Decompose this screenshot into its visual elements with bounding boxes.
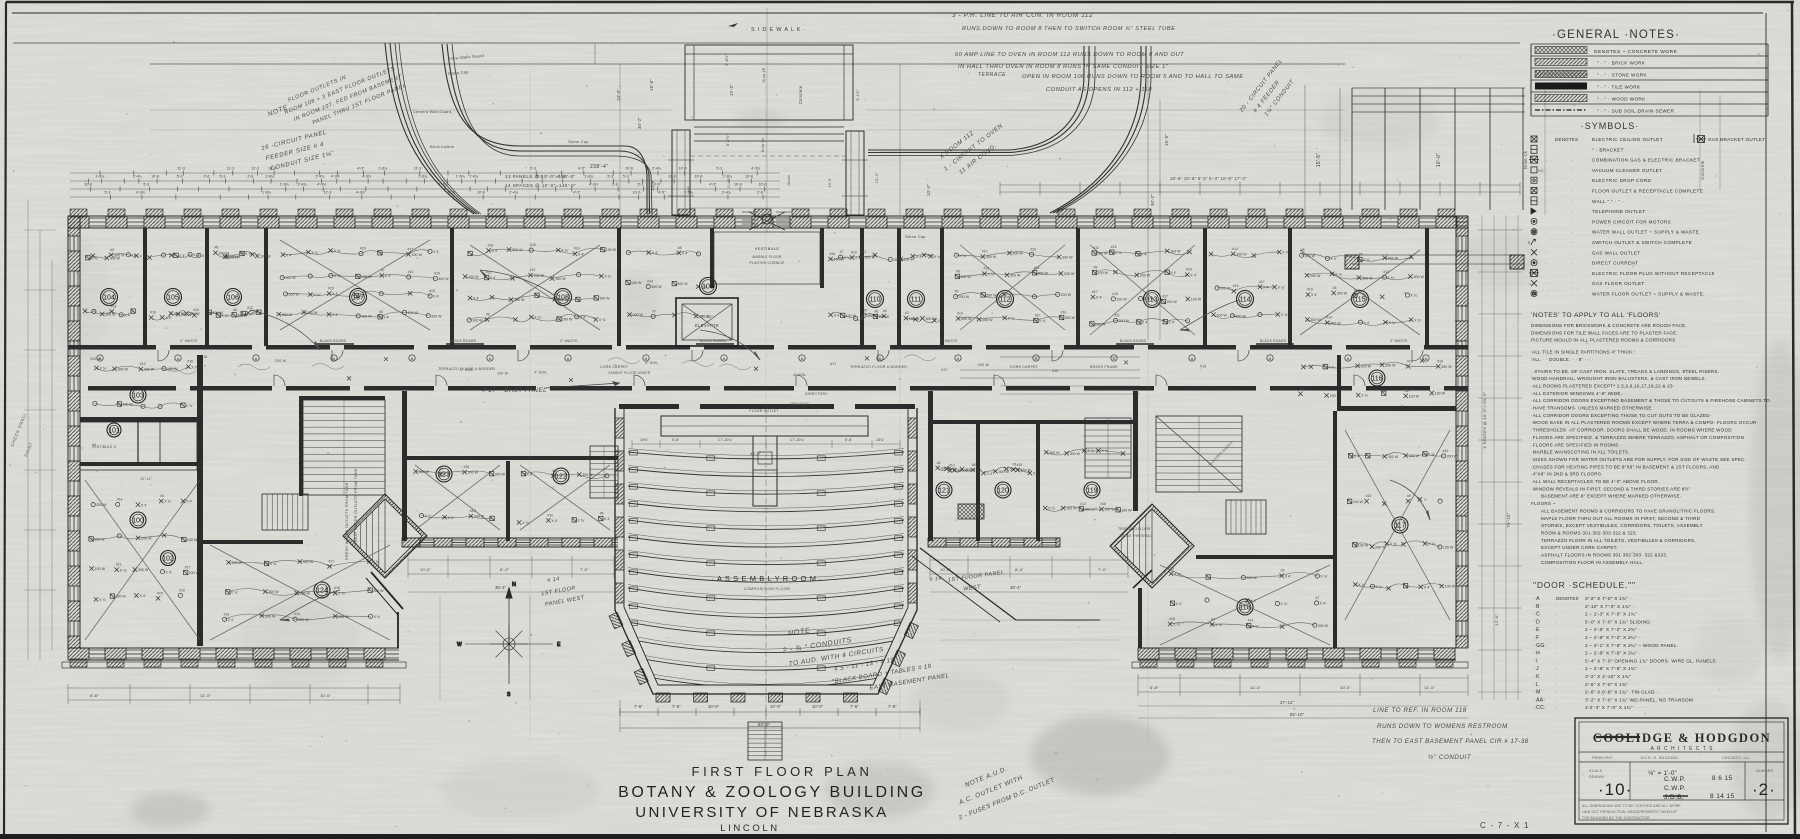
svg-text:#10: #10 xyxy=(1061,311,1067,315)
svg-text:200 W: 200 W xyxy=(986,294,997,298)
svg-text:A: A xyxy=(957,356,960,361)
svg-text:X ¾': X ¾' xyxy=(561,249,568,253)
svg-text:COMPOSITION FLOOR IN ASSEMB: COMPOSITION FLOOR IN ASSEMBLY HALL. xyxy=(1541,560,1644,565)
svg-text:4'-3½: 4'-3½ xyxy=(356,191,365,195)
svg-text:A: A xyxy=(333,356,336,361)
svg-text:·: · xyxy=(1556,674,1558,679)
svg-text:200 W: 200 W xyxy=(1409,454,1420,458)
svg-text:TERRAZZO FLOOR IN ALL TOILETS,: TERRAZZO FLOOR IN ALL TOILETS, VESTIBULE… xyxy=(1541,538,1696,543)
svg-text:X ¾': X ¾' xyxy=(599,318,606,322)
svg-text:#18: #18 xyxy=(1112,292,1118,296)
svg-text:2 – 2'-8" X 7'-6" X 1¾": 2 – 2'-8" X 7'-6" X 1¾" xyxy=(1585,666,1637,671)
svg-text:10'-6: 10'-6 xyxy=(447,191,455,195)
svg-text:X ¾': X ¾' xyxy=(191,365,198,369)
svg-text:X ¾': X ¾' xyxy=(1048,507,1055,511)
svg-text:DIRECT CURRENT: DIRECT CURRENT xyxy=(1592,261,1638,266)
svg-text:27'-11": 27'-11" xyxy=(1280,700,1294,705)
svg-text:X 4': X 4' xyxy=(604,517,610,521)
svg-text:200 W: 200 W xyxy=(982,318,993,322)
svg-text:200 W: 200 W xyxy=(961,317,972,321)
svg-text:30'-2": 30'-2" xyxy=(637,117,642,129)
svg-text:·FLOORS ARE SPECIFIED. & TERR: ·FLOORS ARE SPECIFIED. & TERRAZZO WHERE … xyxy=(1531,435,1744,440)
svg-text:4'-5": 4'-5" xyxy=(709,183,717,187)
svg-text:4'-5": 4'-5" xyxy=(658,191,666,195)
svg-text:5'-3: 5'-3 xyxy=(219,175,225,179)
svg-text:·: · xyxy=(1546,209,1548,214)
svg-text:TERRAZZO FLOOR: TERRAZZO FLOOR xyxy=(1118,527,1151,531)
svg-text:C.W.P.: C.W.P. xyxy=(1664,785,1686,792)
svg-text:200 W: 200 W xyxy=(275,359,287,363)
svg-text:#10: #10 xyxy=(547,513,553,517)
svg-text:300 W: 300 W xyxy=(1010,274,1021,278)
svg-text:10'-6: 10'-6 xyxy=(633,191,641,195)
svg-text:A R C H I T E C T S: A R C H I T E C T S xyxy=(1651,746,1714,752)
svg-text:103: 103 xyxy=(132,393,144,400)
svg-text:101: 101 xyxy=(108,428,120,435)
svg-text:DIMENSIONS FOR BRICKWORK & CO: DIMENSIONS FOR BRICKWORK & CONCRETE ARE … xyxy=(1531,323,1687,328)
svg-text:2'-6" X 6'-8" X 1¾" ·TIN CLA: 2'-6" X 6'-8" X 1¾" ·TIN CLAD · xyxy=(1585,690,1658,695)
svg-text:200 W: 200 W xyxy=(978,363,990,367)
svg-text:V.C.: V.C. xyxy=(1538,169,1545,173)
svg-text:X 4': X 4' xyxy=(1176,602,1182,606)
svg-text:Stone Cap: Stone Cap xyxy=(568,139,589,144)
svg-text:100 W: 100 W xyxy=(122,403,133,407)
svg-text:100: 100 xyxy=(132,518,144,525)
svg-text:X ¾': X ¾' xyxy=(1376,585,1383,589)
svg-text:"DOOR ·SCHEDULE."": "DOOR ·SCHEDULE."" xyxy=(1533,580,1636,590)
svg-text:·: · xyxy=(1572,158,1574,163)
svg-text:X ¾': X ¾' xyxy=(270,562,277,566)
svg-text:GAS WALL OUTLET: GAS WALL OUTLET xyxy=(1592,250,1641,255)
svg-text:X 4': X 4' xyxy=(433,295,439,299)
svg-text:Stone Cap: Stone Cap xyxy=(905,234,926,239)
svg-text:·: · xyxy=(1546,261,1548,266)
svg-text:15'-5": 15'-5" xyxy=(649,79,654,91)
svg-text:7'-6": 7'-6" xyxy=(672,704,681,709)
svg-text:·: · xyxy=(1546,158,1548,163)
svg-text:300 W: 300 W xyxy=(1414,275,1425,279)
svg-text:X 4': X 4' xyxy=(1168,320,1174,324)
svg-text:ALL DIMENSIONS ARE TO BE VERIF: ALL DIMENSIONS ARE TO BE VERIFIED AND AL… xyxy=(1582,804,1681,808)
svg-text:PICTURE MOULD IN ALL PLAS: PICTURE MOULD IN ALL PLASTERED ROOMS & C… xyxy=(1531,338,1675,343)
svg-text:100 W: 100 W xyxy=(606,248,617,252)
svg-text:300 W: 300 W xyxy=(495,472,506,476)
svg-text:X ¾': X ¾' xyxy=(577,519,584,523)
svg-text:2'-4¾: 2'-4¾ xyxy=(509,191,519,195)
svg-text:11'-3": 11'-3" xyxy=(1250,685,1261,690)
svg-text:1'-6¾: 1'-6¾ xyxy=(723,175,733,179)
svg-text:3 - P.H. LINE TO AIR CON. IN R: 3 - P.H. LINE TO AIR CON. IN ROOM 112 xyxy=(952,12,1093,19)
svg-text:#6: #6 xyxy=(883,309,887,313)
svg-text:1'-6¾: 1'-6¾ xyxy=(280,183,290,187)
svg-text:OPEN IN ROOM 108 RUNS DOWN TO: OPEN IN ROOM 108 RUNS DOWN TO ROOM 5 AND… xyxy=(1022,74,1244,80)
svg-text:X ¾': X ¾' xyxy=(1280,602,1287,606)
svg-text:BLACK BOARD: BLACK BOARD xyxy=(1120,339,1147,343)
svg-text:·: · xyxy=(1546,189,1548,194)
svg-text:10'-0": 10'-0" xyxy=(940,567,951,572)
svg-text:X 4': X 4' xyxy=(286,253,292,257)
svg-text:·GENERAL ·NOTES·: ·GENERAL ·NOTES· xyxy=(1552,29,1680,41)
svg-text:2 – 2'-8" X 7'-2" X 2¾" ·: 2 – 2'-8" X 7'-2" X 2¾" · xyxy=(1585,627,1640,632)
svg-text:300 W: 300 W xyxy=(438,277,449,281)
svg-text:6'-4": 6'-4" xyxy=(1015,567,1024,572)
svg-text:X ¾': X ¾' xyxy=(186,404,193,408)
svg-text:300 W: 300 W xyxy=(1235,314,1246,318)
svg-text:·K: ·K xyxy=(1534,674,1540,680)
svg-text:THEN TO EAST BASEMENT PANEL C: THEN TO EAST BASEMENT PANEL CIR.# 17-38 xyxy=(1372,738,1529,745)
svg-text:X 4': X 4' xyxy=(701,285,707,289)
svg-text:5'-3: 5'-3 xyxy=(623,175,629,179)
svg-text:·: · xyxy=(1556,658,1558,663)
svg-text:#4: #4 xyxy=(1333,286,1337,290)
svg-text:X ¾': X ¾' xyxy=(1328,365,1335,369)
svg-text:#9: #9 xyxy=(1407,494,1411,498)
svg-text:#6: #6 xyxy=(160,494,164,498)
svg-text:300 W: 300 W xyxy=(1388,455,1399,459)
svg-text:X ¾': X ¾' xyxy=(334,249,341,253)
svg-text:200 W: 200 W xyxy=(959,295,970,299)
svg-text:100 W: 100 W xyxy=(1358,543,1369,547)
svg-text:#6: #6 xyxy=(379,310,383,314)
svg-text:X ¾': X ¾' xyxy=(338,592,345,596)
svg-text:· S I D E W A L K ·: · S I D E W A L K · xyxy=(746,27,806,33)
svg-text:300 W: 300 W xyxy=(1070,452,1081,456)
svg-text:·L: ·L xyxy=(1534,682,1539,688)
svg-text:#17: #17 xyxy=(1162,295,1168,299)
svg-text:X 4': X 4' xyxy=(1320,602,1326,606)
svg-text:10'-6: 10'-6 xyxy=(734,183,742,187)
svg-text:E: E xyxy=(557,642,561,648)
svg-text:X 4': X 4' xyxy=(938,319,944,323)
svg-text:#19: #19 xyxy=(116,563,122,567)
svg-text:5'-8': 5'-8' xyxy=(672,438,679,442)
svg-text:X ¾': X ¾' xyxy=(1087,449,1094,453)
svg-text:300 W: 300 W xyxy=(1013,252,1024,256)
svg-text:·: · xyxy=(1572,230,1574,235)
svg-text:#8: #8 xyxy=(972,463,976,467)
svg-text:300 W: 300 W xyxy=(138,568,149,572)
svg-text:X ¾': X ¾' xyxy=(202,254,209,258)
svg-text:ELEVATOR: ELEVATOR xyxy=(695,323,719,328)
svg-text:1'-6¾: 1'-6¾ xyxy=(439,183,449,187)
svg-text:DRAWN: DRAWN xyxy=(1589,775,1604,779)
svg-text:2'-4¾: 2'-4¾ xyxy=(316,175,326,179)
svg-text:100 W: 100 W xyxy=(468,275,479,279)
svg-text:#13: #13 xyxy=(949,464,955,468)
svg-text:BASEMENT ARE 8" EXCEPT WHE: BASEMENT ARE 8" EXCEPT WHERE MARKED OTHE… xyxy=(1541,494,1682,499)
svg-text:200 W: 200 W xyxy=(1140,274,1151,278)
svg-text:X ¾': X ¾' xyxy=(604,275,611,279)
svg-text:STORIES, EXCEPT VESTIBULES, C: STORIES, EXCEPT VESTIBULES, CORRIDORS, T… xyxy=(1541,523,1703,528)
svg-text:5'-3: 5'-3 xyxy=(716,167,722,171)
svg-text:NUMBER: NUMBER xyxy=(1756,769,1773,773)
svg-text:#9: #9 xyxy=(1094,266,1098,270)
svg-text:FRESH WATER OUTLETS FROM TANK: FRESH WATER OUTLETS FROM TANK xyxy=(345,482,349,560)
svg-text:#15: #15 xyxy=(1017,463,1023,467)
svg-text:A: A xyxy=(1035,356,1038,361)
svg-text:8 6 15: 8 6 15 xyxy=(1712,775,1732,782)
svg-text:100 W: 100 W xyxy=(1170,250,1181,254)
svg-text:200 W: 200 W xyxy=(893,258,904,262)
svg-text:100 W: 100 W xyxy=(361,315,372,319)
svg-text:2'-4¾: 2'-4¾ xyxy=(133,175,143,179)
svg-text:·: · xyxy=(1572,168,1574,173)
svg-text:200 W: 200 W xyxy=(431,314,442,318)
svg-text:Drive Ck: Drive Ck xyxy=(1523,150,1528,169)
svg-text:38'-4": 38'-4" xyxy=(1010,585,1022,590)
svg-text:300 W: 300 W xyxy=(651,285,662,289)
svg-text:100 W: 100 W xyxy=(1104,508,1115,512)
svg-text:7'-0": 7'-0" xyxy=(580,567,589,572)
svg-text:100 W: 100 W xyxy=(555,277,566,281)
svg-text:#16: #16 xyxy=(1233,284,1239,288)
svg-text:ELECTRIC CEILING OUTLET: ELECTRIC CEILING OUTLET xyxy=(1592,137,1663,142)
svg-text:1'-6¾: 1'-6¾ xyxy=(469,175,479,179)
svg-text:CONDUIT AS OPENS IN 112 + 11: CONDUIT AS OPENS IN 112 + 118 xyxy=(1046,87,1152,93)
svg-text:2 – 2'-8" X 7'-6" X 2¼" ·: 2 – 2'-8" X 7'-6" X 2¼" · xyxy=(1585,651,1640,656)
svg-text:BRASS FRAME: BRASS FRAME xyxy=(1090,365,1118,369)
svg-text:LINCOLN: LINCOLN xyxy=(720,823,779,834)
svg-text:WALL " " ·: WALL " " · " · xyxy=(1592,199,1624,204)
svg-text:5'-0" X 7'-0" X 1¾" SLIDING·: 5'-0" X 7'-0" X 1¾" SLIDING· xyxy=(1585,619,1652,624)
svg-text:10'-6: 10'-6 xyxy=(759,183,767,187)
svg-text:7'-0": 7'-0" xyxy=(1098,567,1107,572)
svg-text:#17: #17 xyxy=(329,559,335,563)
svg-text:·F: ·F xyxy=(1534,635,1540,641)
svg-text:X 4': X 4' xyxy=(1142,321,1148,325)
svg-text:X ¾': X ¾' xyxy=(1410,294,1417,298)
svg-text:·10·: ·10· xyxy=(1598,780,1632,799)
svg-text:#14: #14 xyxy=(1248,619,1254,623)
svg-text:2 – 2'-8" X 7'-2" X 2¼" ·: 2 – 2'-8" X 7'-2" X 2¼" · xyxy=(1585,635,1640,640)
svg-text:·: · xyxy=(1572,178,1574,183)
svg-text:#18: #18 xyxy=(334,586,340,590)
svg-text:MARBLE FLOOR: MARBLE FLOOR xyxy=(753,255,782,259)
svg-text:·: · xyxy=(1546,199,1548,204)
svg-text:2'-4¾: 2'-4¾ xyxy=(652,167,662,171)
svg-text:#14: #14 xyxy=(1326,316,1332,320)
svg-text:IN HALL THRU OVEN IN ROOM 8: IN HALL THRU OVEN IN ROOM 8 RUNS IN SAME… xyxy=(958,64,1169,70)
svg-text:100 W: 100 W xyxy=(412,253,423,257)
svg-text:X ¾': X ¾' xyxy=(374,615,381,619)
svg-text:3" WASTE: 3" WASTE xyxy=(560,339,578,343)
svg-text:4'-5": 4'-5" xyxy=(357,167,365,171)
svg-text:112: 112 xyxy=(999,297,1010,304)
svg-text:300 W: 300 W xyxy=(114,254,125,258)
svg-text:DIRECTORY: DIRECTORY xyxy=(805,392,828,396)
svg-text:X 4': X 4' xyxy=(139,254,145,258)
svg-text:100 W: 100 W xyxy=(167,367,178,371)
svg-text:#3: #3 xyxy=(955,290,959,294)
svg-text:X ¾': X ¾' xyxy=(1361,394,1368,398)
svg-text:A: A xyxy=(723,356,726,361)
svg-text:X 4': X 4' xyxy=(385,274,391,278)
svg-text:X 4': X 4' xyxy=(987,472,993,476)
svg-text:X 4': X 4' xyxy=(124,313,130,317)
svg-text:Concrete: Concrete xyxy=(798,85,803,104)
svg-text:·AA·: ·AA· xyxy=(1534,697,1546,703)
svg-text:X ¾': X ¾' xyxy=(164,500,171,504)
svg-text:8'-7½": 8'-7½" xyxy=(726,134,730,146)
svg-text:17'-10¼': 17'-10¼' xyxy=(718,438,733,442)
svg-text:300 W: 300 W xyxy=(699,315,710,319)
svg-text:X ¾': X ¾' xyxy=(1363,258,1370,262)
svg-text:#16: #16 xyxy=(294,612,300,616)
svg-text:·: · xyxy=(1546,230,1548,235)
svg-text:·A: ·A xyxy=(1534,596,1540,602)
svg-text:FIRST FLOOR PLAN: FIRST FLOOR PLAN xyxy=(692,764,873,779)
svg-text:60 AMP LINE TO OVEN IN ROOM 1: 60 AMP LINE TO OVEN IN ROOM 112 RUNS DOW… xyxy=(955,52,1184,58)
svg-text:X ¾': X ¾' xyxy=(1320,575,1327,579)
svg-text:·: · xyxy=(1572,292,1574,297)
svg-text:LINE TO REF. IN ROOM 118: LINE TO REF. IN ROOM 118 xyxy=(1373,707,1467,714)
svg-text:X 4': X 4' xyxy=(682,251,688,255)
svg-text:#6: #6 xyxy=(1405,389,1409,393)
svg-text:#14: #14 xyxy=(574,247,580,251)
svg-text:#12: #12 xyxy=(247,306,253,310)
svg-text:#12: #12 xyxy=(861,250,867,254)
svg-text:11'-3": 11'-3" xyxy=(200,693,211,698)
svg-text:C.W.P.: C.W.P. xyxy=(1664,776,1686,783)
svg-text:" · " · WOOD: " · " · WOOD WORK xyxy=(1597,97,1646,102)
svg-text:X ¾': X ¾' xyxy=(100,367,107,371)
svg-text:X ¾': X ¾' xyxy=(1389,321,1396,325)
svg-text:X ¾': X ¾' xyxy=(1428,453,1435,457)
svg-text:100 W: 100 W xyxy=(1121,508,1132,512)
svg-text:#19: #19 xyxy=(530,268,536,272)
svg-text:·MARBLE WAINSCOTING IN ALL TO: ·MARBLE WAINSCOTING IN ALL TOILETS· xyxy=(1531,450,1630,455)
svg-text:300 W: 300 W xyxy=(1065,316,1076,320)
svg-text:116: 116 xyxy=(1371,376,1382,383)
svg-text:#16: #16 xyxy=(150,311,156,315)
svg-text:X 4': X 4' xyxy=(186,500,192,504)
svg-text:X ¾': X ¾' xyxy=(1281,313,1288,317)
svg-text:15¾': 15¾' xyxy=(640,438,648,442)
svg-text:X 4': X 4' xyxy=(141,503,147,507)
svg-text:X ¾': X ¾' xyxy=(1115,251,1122,255)
svg-text:300 W: 300 W xyxy=(298,618,309,622)
svg-text:10'-0": 10'-0" xyxy=(812,704,824,709)
svg-text:117: 117 xyxy=(1394,523,1405,530)
svg-text:7'-6": 7'-6" xyxy=(634,704,643,709)
svg-text:12'-6": 12'-6" xyxy=(1494,614,1499,626)
svg-text:X 4': X 4' xyxy=(1263,285,1269,289)
svg-text:·: · xyxy=(1556,690,1558,695)
svg-text:·4"X8" IN 2ND & 3RD FLOOR: ·4"X8" IN 2ND & 3RD FLOORS· xyxy=(1531,472,1603,477)
svg-text:300 W: 300 W xyxy=(1441,365,1452,369)
svg-text:2'-6: 2'-6 xyxy=(203,175,209,179)
svg-text:X 4': X 4' xyxy=(140,594,146,598)
svg-text:100 W: 100 W xyxy=(599,297,610,301)
svg-text:Drop 4R: Drop 4R xyxy=(762,67,766,82)
svg-text:BRASS THRESHOLD: BRASS THRESHOLD xyxy=(1120,534,1153,538)
svg-text:X ¾': X ¾' xyxy=(934,255,941,259)
svg-text:ASPHALT FLOORS IN ROOMS 30: ASPHALT FLOORS IN ROOMS 301·302·303· 322… xyxy=(1541,553,1668,558)
svg-text:10'-6" 10'-6" 5'-3": 10'-6" 10'-6" 5'-3" 5'-3" 10'-6" 17'-2" xyxy=(1170,176,1247,181)
svg-text:·: · xyxy=(1572,199,1574,204)
svg-text:Brick Incline: Brick Incline xyxy=(430,144,455,149)
svg-text:X ¾': X ¾' xyxy=(1173,623,1180,627)
svg-text:1'-6¾: 1'-6¾ xyxy=(95,175,105,179)
svg-text:A: A xyxy=(801,356,804,361)
svg-text:·THRESHOLDS ·AT CORRIDOR. DO: ·THRESHOLDS ·AT CORRIDOR. DOORS SHALL BE… xyxy=(1531,428,1732,433)
svg-text:#17: #17 xyxy=(1092,290,1098,294)
svg-text:#6: #6 xyxy=(937,461,941,465)
svg-text:X ¾': X ¾' xyxy=(1414,318,1421,322)
svg-text:#16: #16 xyxy=(1052,369,1058,373)
svg-text:SWITCH OUTLET & SWITCH COMP: SWITCH OUTLET & SWITCH COMPLETE xyxy=(1592,240,1692,245)
svg-text:2'-6: 2'-6 xyxy=(757,191,763,195)
svg-text:#10: #10 xyxy=(1031,247,1037,251)
svg-text:10'-0": 10'-0" xyxy=(320,693,331,698)
svg-text:BOTANY & ZOOLOGY BUILDING: BOTANY & ZOOLOGY BUILDING xyxy=(618,784,926,801)
svg-text:·: · xyxy=(1556,682,1558,687)
svg-text:80'-0": 80'-0" xyxy=(758,722,771,727)
svg-text:200 W: 200 W xyxy=(1119,319,1130,323)
svg-text:#6: #6 xyxy=(552,469,556,473)
svg-text:X 4': X 4' xyxy=(1311,293,1317,297)
svg-text:10'-4": 10'-4" xyxy=(926,184,931,196)
svg-text:X 4': X 4' xyxy=(855,256,861,260)
svg-text:X ¾': X ¾' xyxy=(231,591,238,595)
svg-text:#15: #15 xyxy=(140,362,146,366)
svg-text:·J: ·J xyxy=(1534,666,1539,672)
svg-text:A: A xyxy=(1425,356,1428,361)
svg-text:·H: ·H xyxy=(1534,651,1540,657)
svg-text:#10: #10 xyxy=(1407,359,1413,363)
svg-text:A: A xyxy=(177,356,180,361)
svg-text:5'-3: 5'-3 xyxy=(530,167,536,171)
svg-text:·I: ·I xyxy=(1534,658,1538,664)
svg-text:Drop Ck: Drop Ck xyxy=(761,138,765,153)
svg-text:200 W: 200 W xyxy=(90,357,102,361)
svg-text:X 4': X 4' xyxy=(1424,585,1430,589)
svg-text:6'-8": 6'-8" xyxy=(90,693,99,698)
svg-text:#15: #15 xyxy=(429,289,435,293)
svg-text:#16: #16 xyxy=(464,465,470,469)
svg-text:100 W: 100 W xyxy=(1445,585,1456,589)
svg-text:X 4': X 4' xyxy=(433,250,439,254)
svg-text:MAPLE FLOOR THRU OUT ALL ROOM: MAPLE FLOOR THRU OUT ALL ROOMS IN FIRST,… xyxy=(1541,516,1701,521)
svg-text:· A S S E M B L Y R O O M ·: · A S S E M B L Y R O O M · xyxy=(712,574,823,583)
svg-text:# 17 – EAST PANEL: # 17 – EAST PANEL xyxy=(482,388,547,394)
svg-text:100 W: 100 W xyxy=(960,275,971,279)
svg-text:FLOOR OUTLET & RECEPTACLE C: FLOOR OUTLET & RECEPTACLE COMPLETE xyxy=(1592,189,1703,194)
svg-text:X 4': X 4' xyxy=(1190,273,1196,277)
svg-text:#10: #10 xyxy=(193,308,199,312)
svg-text:X ¾': X ¾' xyxy=(1278,286,1285,290)
svg-text:300 W: 300 W xyxy=(1330,321,1341,325)
svg-text:4'-3½: 4'-3½ xyxy=(136,191,145,195)
svg-text:X 4': X 4' xyxy=(527,472,533,476)
svg-text:#17: #17 xyxy=(1259,280,1265,284)
svg-text:X ¾': X ¾' xyxy=(120,568,127,572)
svg-text:" · " · TILE: " · " · TILE WORK xyxy=(1597,85,1641,90)
svg-text:#15: #15 xyxy=(328,287,334,291)
svg-text:1'-6¾: 1'-6¾ xyxy=(265,175,275,179)
svg-text:WATER WALL OUTLET ~ SUPPLY: WATER WALL OUTLET ~ SUPPLY & WASTE. xyxy=(1592,230,1701,235)
svg-text:A: A xyxy=(489,356,492,361)
svg-text:DENOTES: DENOTES xyxy=(1555,137,1578,142)
svg-text:X 4': X 4' xyxy=(490,276,496,280)
svg-text:6'-8": 6'-8" xyxy=(1150,685,1159,690)
svg-text:·: · xyxy=(1556,635,1558,640)
svg-text:WATER FLOOR OUTLET ~ SUPPLY: WATER FLOOR OUTLET ~ SUPPLY & WASTE. xyxy=(1592,292,1705,297)
svg-text:200 W: 200 W xyxy=(141,537,152,541)
svg-text:200 W: 200 W xyxy=(1385,363,1396,367)
svg-text:6 SPACES @ 10'-0"= 60'-0": 6 SPACES @ 10'-0"= 60'-0" xyxy=(1482,391,1487,448)
svg-text:110: 110 xyxy=(869,297,880,304)
